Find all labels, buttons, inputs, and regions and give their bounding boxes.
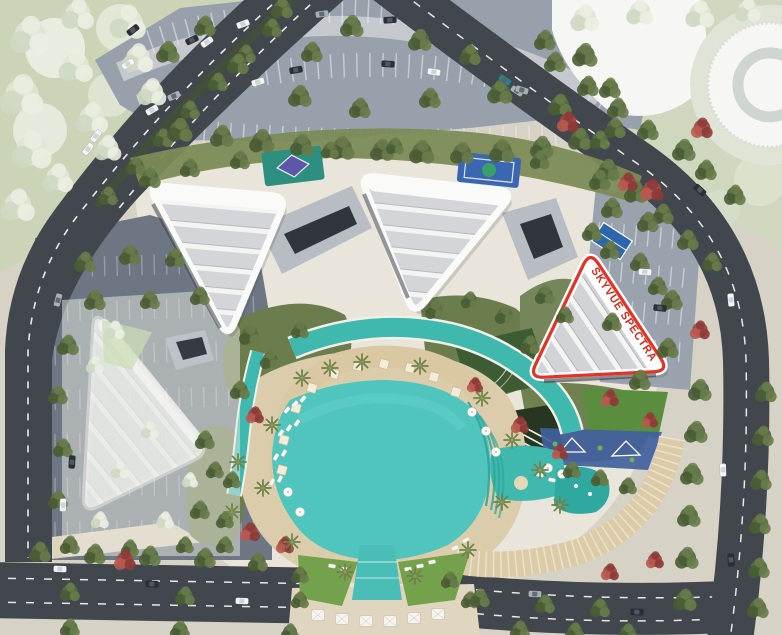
umbrella bbox=[296, 508, 305, 517]
car bbox=[653, 304, 667, 312]
umbrella bbox=[468, 408, 477, 417]
palm-tree bbox=[460, 542, 476, 558]
car bbox=[528, 591, 541, 598]
daybed bbox=[450, 386, 461, 397]
umbrella bbox=[284, 488, 293, 497]
umbrella bbox=[482, 427, 491, 436]
site-plan-svg: SKYVUE SPECTRA bbox=[0, 0, 782, 635]
cabana bbox=[360, 616, 373, 627]
car bbox=[727, 553, 734, 566]
palm-tree bbox=[552, 497, 568, 513]
palm-tree bbox=[504, 432, 520, 448]
palm-tree bbox=[407, 568, 423, 584]
palm-tree bbox=[494, 494, 510, 510]
car bbox=[145, 581, 158, 588]
car bbox=[60, 498, 67, 511]
water-channel bbox=[352, 545, 402, 600]
cabana bbox=[432, 609, 445, 620]
cabana bbox=[312, 610, 325, 621]
car bbox=[720, 463, 727, 476]
car bbox=[383, 16, 396, 23]
car bbox=[630, 609, 643, 616]
palm-tree bbox=[474, 390, 490, 406]
daybed bbox=[276, 464, 287, 475]
palm-tree bbox=[230, 454, 246, 470]
palm-tree bbox=[284, 534, 300, 550]
car bbox=[68, 455, 75, 468]
daybed bbox=[428, 371, 439, 382]
umbrella bbox=[492, 448, 501, 457]
road-south bbox=[0, 578, 334, 608]
car bbox=[53, 566, 66, 573]
palm-tree bbox=[322, 360, 338, 376]
car bbox=[381, 60, 394, 67]
car bbox=[638, 268, 651, 275]
palm-tree bbox=[264, 417, 280, 433]
cabana bbox=[336, 614, 349, 625]
daybed bbox=[378, 358, 389, 369]
palm-tree bbox=[337, 564, 353, 580]
palm-tree bbox=[294, 370, 310, 386]
palm-tree bbox=[532, 462, 548, 478]
car bbox=[235, 598, 248, 605]
palm-tree bbox=[255, 480, 271, 496]
roof-band bbox=[162, 192, 274, 202]
master-plan-render: SKYVUE SPECTRA bbox=[0, 0, 782, 635]
car bbox=[727, 293, 735, 307]
palm-tree bbox=[412, 358, 428, 374]
cabana bbox=[408, 613, 421, 624]
sun-lounger bbox=[416, 564, 423, 569]
palm-tree bbox=[224, 504, 240, 520]
sun-lounger bbox=[328, 564, 335, 569]
cabana bbox=[384, 616, 397, 627]
palm-tree bbox=[354, 354, 370, 370]
